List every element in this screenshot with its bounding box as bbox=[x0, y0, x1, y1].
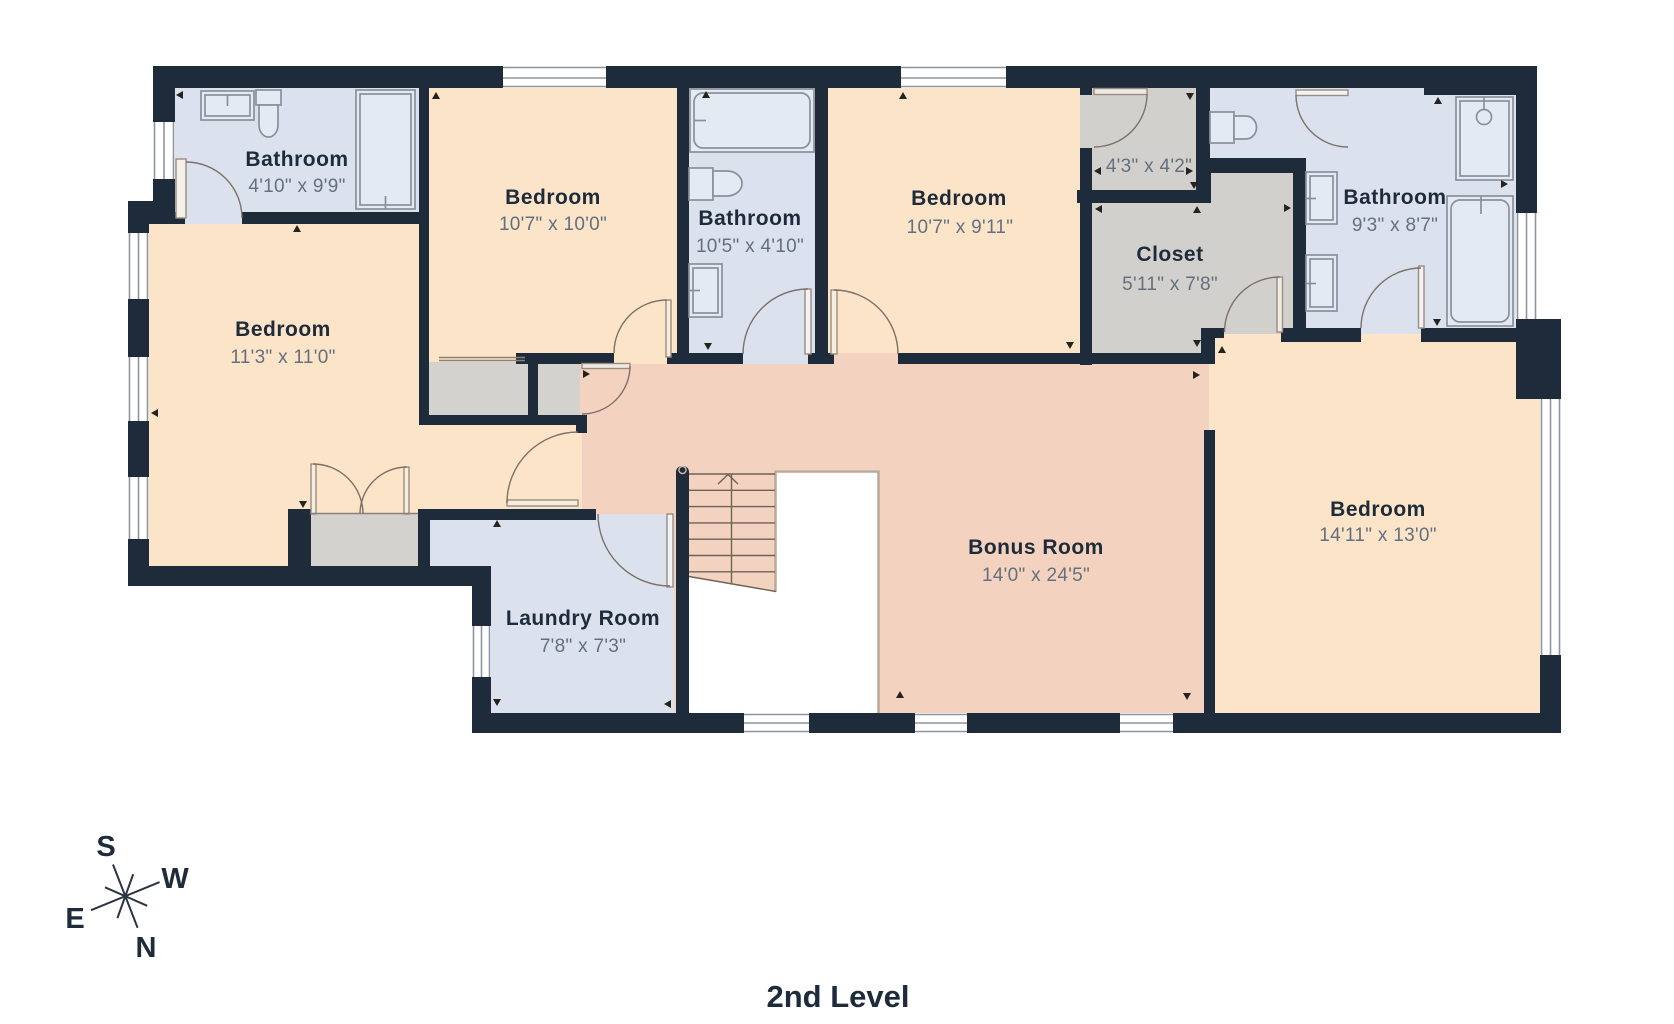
svg-text:Closet: Closet bbox=[1136, 243, 1203, 266]
svg-text:7'8" x 7'3": 7'8" x 7'3" bbox=[540, 636, 626, 657]
svg-text:10'7" x 9'11": 10'7" x 9'11" bbox=[907, 217, 1014, 238]
svg-text:E: E bbox=[65, 903, 84, 935]
svg-text:9'3" x 8'7": 9'3" x 8'7" bbox=[1352, 215, 1438, 236]
svg-text:Bedroom: Bedroom bbox=[235, 318, 331, 341]
svg-text:Bedroom: Bedroom bbox=[505, 186, 601, 209]
svg-text:W: W bbox=[161, 863, 189, 895]
svg-text:11'3" x 11'0": 11'3" x 11'0" bbox=[230, 347, 335, 368]
svg-text:4'3" x 4'2": 4'3" x 4'2" bbox=[1106, 156, 1192, 177]
svg-text:Bathroom: Bathroom bbox=[245, 148, 348, 171]
svg-text:10'5" x 4'10": 10'5" x 4'10" bbox=[696, 236, 804, 257]
svg-text:10'7" x 10'0": 10'7" x 10'0" bbox=[499, 214, 607, 235]
svg-text:2nd Level: 2nd Level bbox=[767, 979, 910, 1014]
svg-text:Bathroom: Bathroom bbox=[1343, 186, 1446, 209]
svg-text:14'11" x 13'0": 14'11" x 13'0" bbox=[1319, 525, 1437, 546]
svg-text:S: S bbox=[96, 831, 115, 863]
svg-text:14'0" x 24'5": 14'0" x 24'5" bbox=[982, 565, 1090, 586]
svg-text:Laundry Room: Laundry Room bbox=[506, 607, 660, 630]
svg-text:N: N bbox=[136, 932, 157, 964]
svg-text:Bathroom: Bathroom bbox=[698, 207, 801, 230]
svg-text:4'10" x 9'9": 4'10" x 9'9" bbox=[248, 176, 345, 197]
svg-text:5'11" x 7'8": 5'11" x 7'8" bbox=[1122, 274, 1218, 295]
svg-text:Bedroom: Bedroom bbox=[1330, 498, 1426, 521]
svg-text:Bedroom: Bedroom bbox=[911, 187, 1007, 210]
svg-text:Bonus Room: Bonus Room bbox=[968, 536, 1104, 559]
